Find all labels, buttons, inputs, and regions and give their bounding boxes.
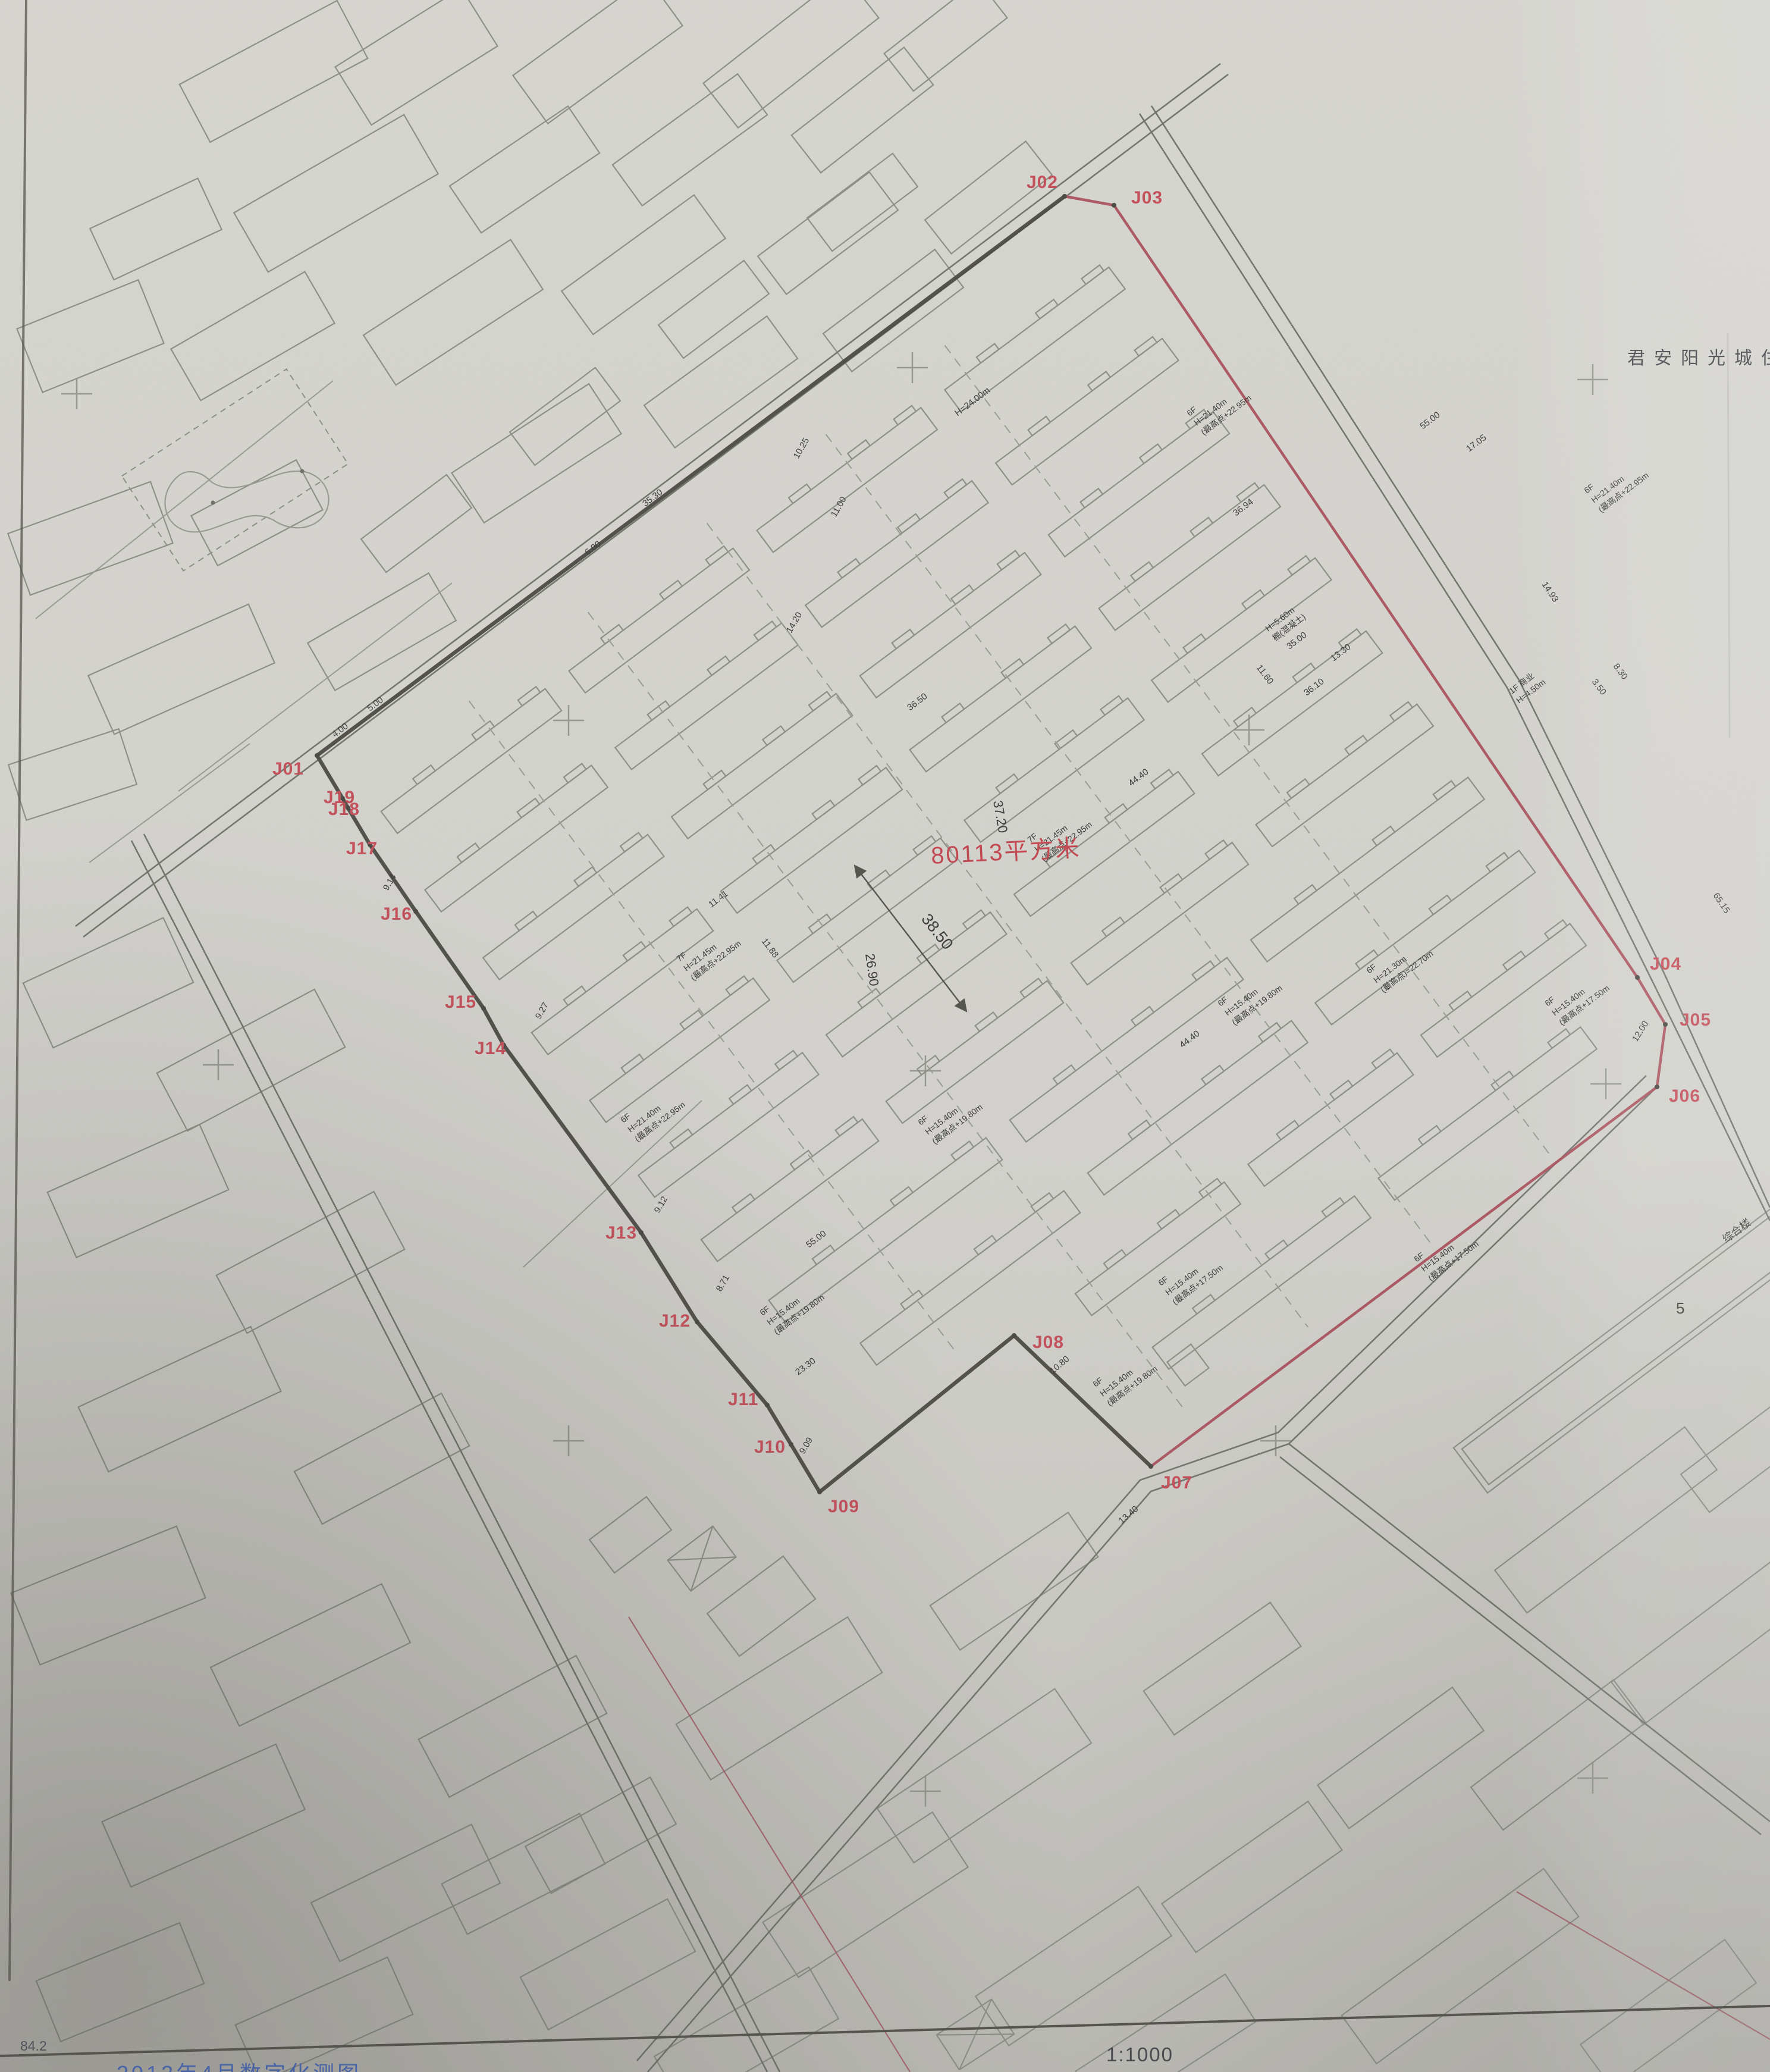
page-title: 君安阳光城住宅小 [1627,349,1770,368]
survey-map-sheet: 4.005.0010.2511.0014.20H=24.00m35.306.00… [0,0,1770,2072]
cadastral-map-canvas: 4.005.0010.2511.0014.20H=24.00m35.306.00… [0,0,1770,2072]
survey-date-note: 2013年4月数字化测图 [117,2061,362,2072]
sheet-number: 84.2 [20,2038,47,2054]
map-scale-label: 1:1000 [1106,2043,1173,2065]
block-number-label: 5 [1676,1299,1684,1317]
sheen-right [0,0,1770,2072]
